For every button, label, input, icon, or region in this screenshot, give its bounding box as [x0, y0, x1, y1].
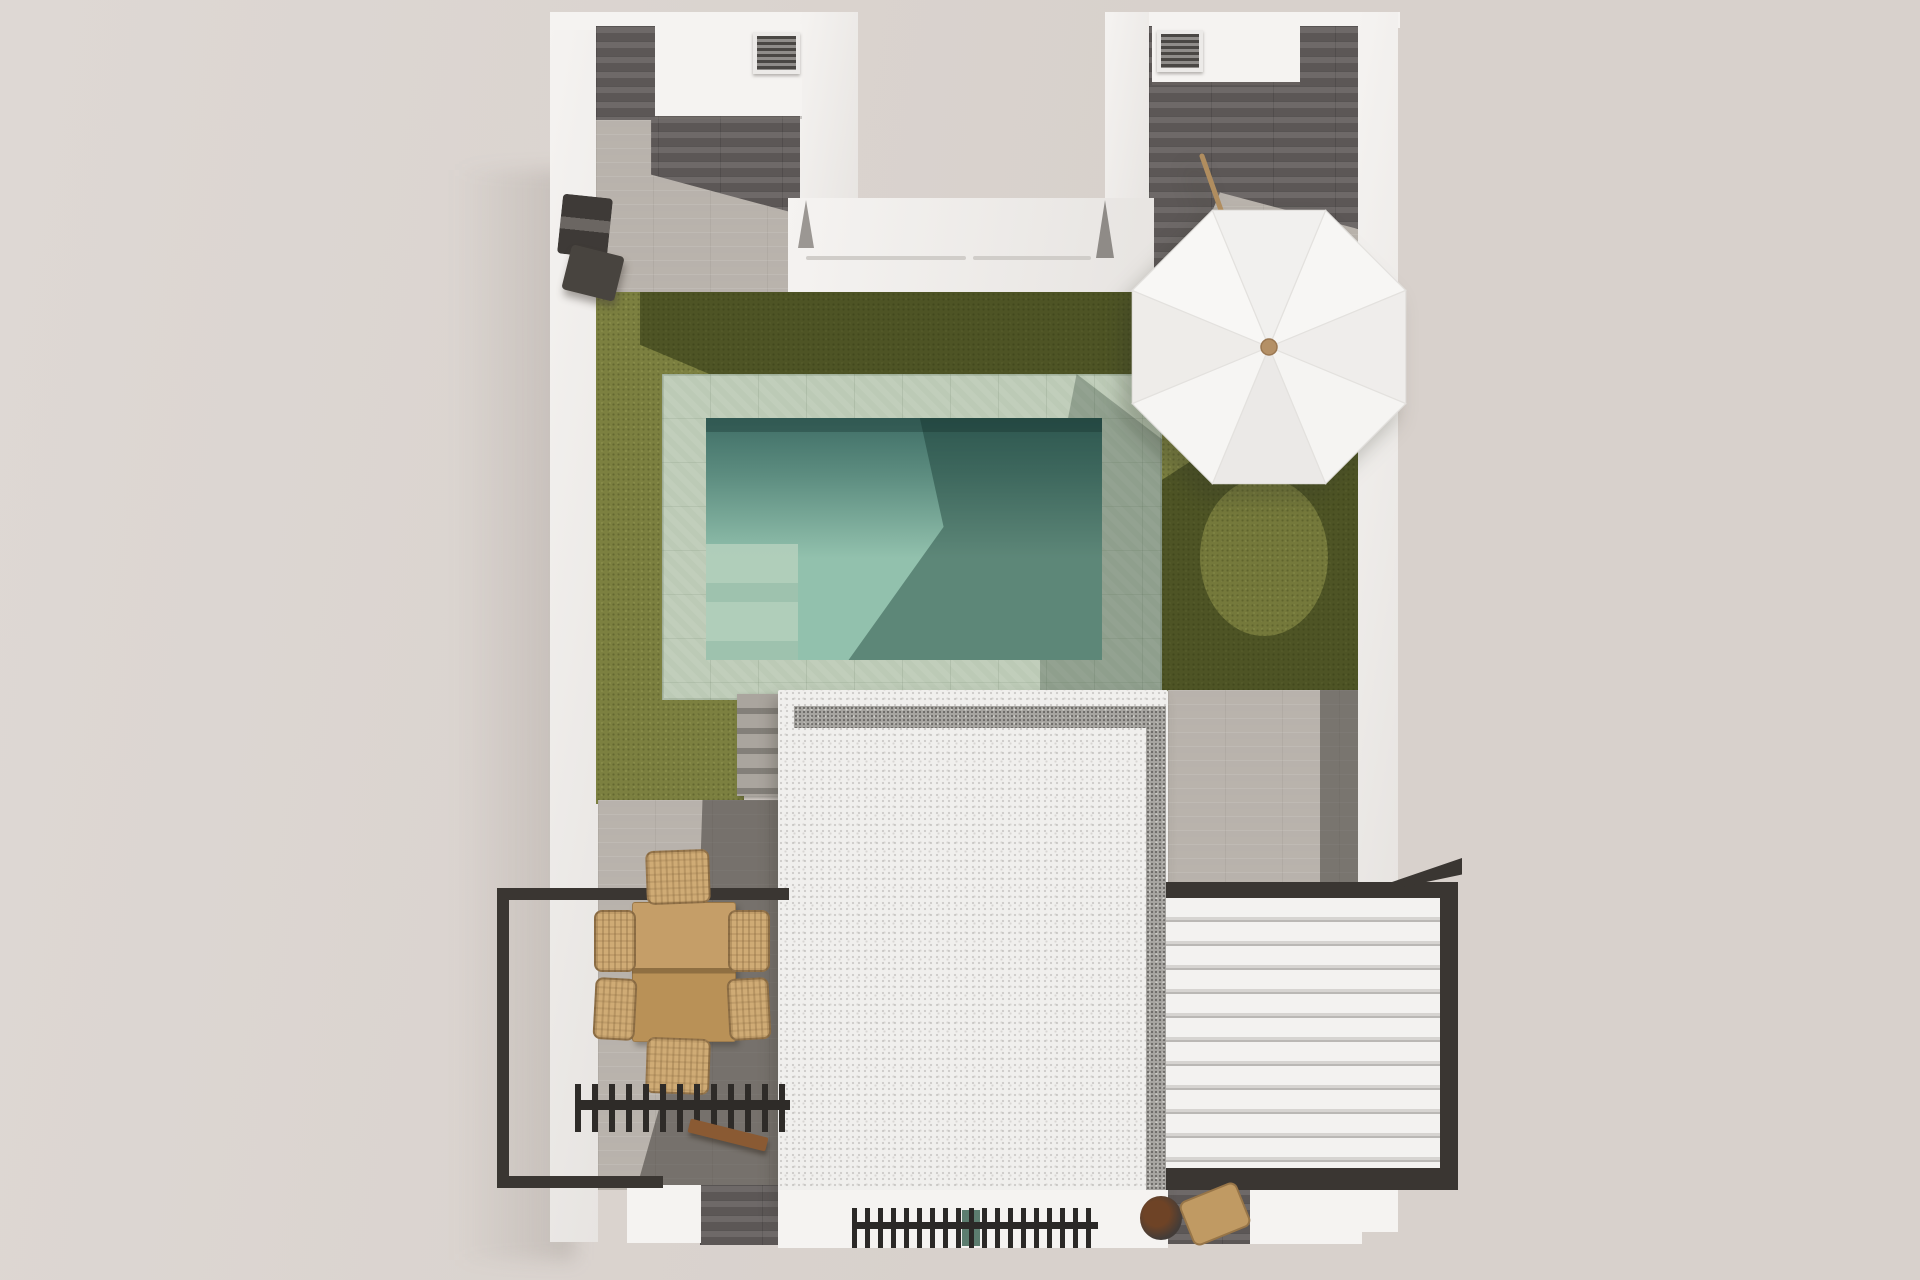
garden-stairs — [737, 694, 783, 796]
dining-chair-west-2 — [592, 977, 637, 1041]
roof-gravel-strip-top — [794, 706, 1152, 728]
bottom-right-wall-step-2 — [1362, 1186, 1398, 1232]
louvered-pergola-frame — [1166, 882, 1458, 1190]
bottom-right-wall-step — [1250, 1186, 1362, 1244]
balcony-rail-bottom — [497, 1176, 663, 1188]
right-patio-shadow — [1320, 690, 1358, 888]
parasol — [1118, 150, 1420, 500]
dining-chair-west-1 — [594, 910, 636, 972]
roof-building — [778, 690, 1168, 1210]
dining-table — [632, 902, 736, 1042]
planter-pot — [1140, 1196, 1182, 1240]
dining-chair-east-1 — [728, 910, 770, 972]
grill-vent-bar — [852, 1222, 1098, 1229]
balcony-rail-top — [497, 888, 789, 900]
ac-unit-left — [753, 32, 800, 74]
lawn-left-extension — [596, 692, 744, 804]
lawn-lit-patch — [1200, 478, 1328, 636]
slatted-pergola-left-beam — [575, 1100, 790, 1110]
terrace-door-track-left — [806, 256, 966, 260]
dining-chair-east-2 — [726, 977, 771, 1041]
aerial-render — [0, 0, 1920, 1280]
ac-unit-right — [1157, 30, 1203, 72]
bottom-left-wall-jog — [627, 1185, 701, 1243]
bottom-left-tiles — [700, 1185, 782, 1245]
pool-steps — [706, 544, 798, 660]
pool-wall-edge — [706, 418, 1102, 432]
balcony-rail-left — [497, 888, 509, 1188]
dining-chair-north — [645, 849, 711, 905]
roof-gravel-strip-right — [1146, 706, 1166, 1190]
parasol-hub — [1261, 339, 1277, 355]
terrace-door-track-right — [973, 256, 1091, 260]
